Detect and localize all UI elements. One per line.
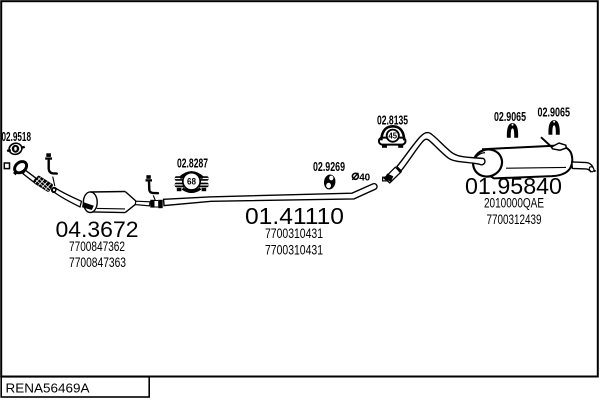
svg-text:2010000QAE: 2010000QAE	[484, 196, 544, 211]
svg-text:45: 45	[389, 132, 398, 141]
svg-text:02.9065: 02.9065	[494, 109, 526, 124]
svg-text:7700847363: 7700847363	[69, 255, 126, 270]
svg-text:68: 68	[187, 177, 196, 187]
svg-text:7700847362: 7700847362	[69, 239, 125, 254]
svg-text:02.8135: 02.8135	[377, 113, 408, 128]
svg-text:02.9518: 02.9518	[2, 129, 32, 144]
svg-text:7700312439: 7700312439	[487, 212, 542, 227]
svg-text:02.9065: 02.9065	[538, 105, 571, 120]
svg-text:7700310431: 7700310431	[265, 226, 323, 241]
svg-text:7700310431: 7700310431	[265, 242, 323, 257]
svg-text:02.8287: 02.8287	[177, 156, 208, 171]
svg-text:40: 40	[359, 171, 370, 183]
svg-text:02.9269: 02.9269	[313, 159, 345, 174]
svg-text:RENA56469A: RENA56469A	[6, 382, 91, 396]
